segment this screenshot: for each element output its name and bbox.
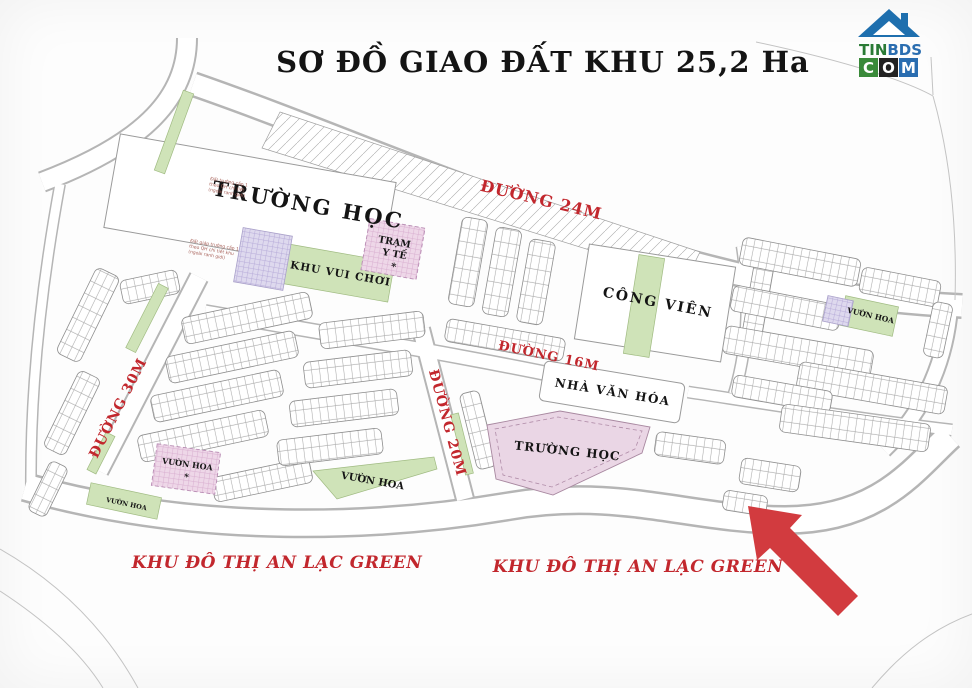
- plot-block: [276, 428, 383, 467]
- plot-block: [654, 431, 727, 465]
- boundary-line: [931, 57, 933, 95]
- plot-block: [482, 226, 523, 317]
- page-title: SƠ ĐỒ GIAO ĐẤT KHU 25,2 Ha: [276, 40, 810, 79]
- caption-urban-right: KHU ĐÔ THỊ AN LẠC GREEN: [492, 556, 785, 577]
- logo-letter-o: O: [882, 59, 895, 77]
- logo-text-tinbds: TINBDS: [859, 41, 922, 59]
- caption-urban-left: KHU ĐÔ THỊ AN LẠC GREEN: [131, 552, 424, 573]
- plot-block: [289, 389, 399, 428]
- boundary-line: [0, 591, 103, 688]
- boundary-line: [872, 614, 972, 688]
- plot-block: [516, 238, 556, 325]
- plot-block: [448, 216, 489, 307]
- plot-block: [55, 267, 120, 364]
- tinbds-logo: TINBDS C O M: [858, 9, 922, 77]
- boundary-line: [933, 96, 955, 300]
- logo-letter-m: M: [901, 59, 916, 77]
- plot-block: [738, 457, 801, 492]
- lavender-parcel: [234, 228, 293, 291]
- site-plan-map: SƠ ĐỒ GIAO ĐẤT KHU 25,2 Ha ĐƯỜNG 24M ĐƯỜ…: [0, 0, 972, 688]
- plot-block: [303, 350, 413, 389]
- land-allocation-map-page: SƠ ĐỒ GIAO ĐẤT KHU 25,2 Ha ĐƯỜNG 24M ĐƯỜ…: [0, 0, 972, 688]
- logo-letter-c: C: [863, 59, 874, 77]
- logo-house-chimney-icon: [901, 13, 908, 30]
- boundary-line: [0, 549, 138, 688]
